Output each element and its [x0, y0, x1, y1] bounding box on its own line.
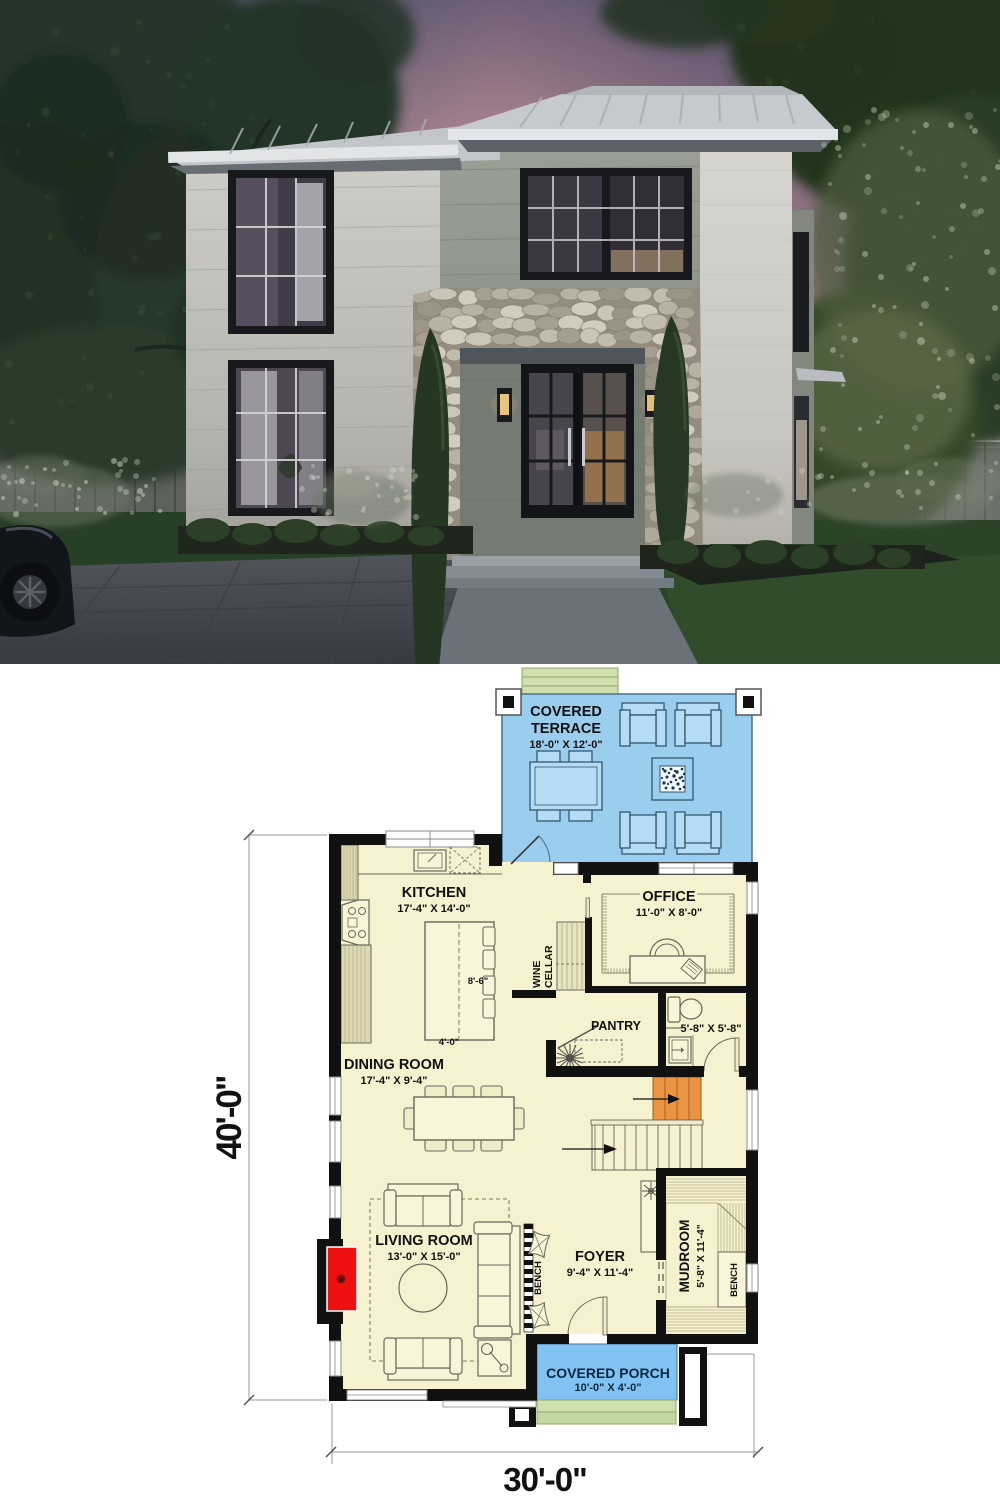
svg-text:5'-8" X 5'-8": 5'-8" X 5'-8"	[681, 1023, 742, 1035]
svg-text:4'-0": 4'-0"	[439, 1037, 460, 1048]
svg-text:LIVING ROOM: LIVING ROOM	[375, 1233, 472, 1249]
svg-text:DINING ROOM: DINING ROOM	[344, 1057, 444, 1073]
svg-text:COVERED PORCH: COVERED PORCH	[546, 1365, 670, 1381]
svg-text:OFFICE: OFFICE	[642, 889, 695, 905]
svg-text:BENCH: BENCH	[533, 1261, 544, 1295]
svg-text:8'-6": 8'-6"	[468, 976, 489, 987]
svg-text:10'-0" X 4'-0": 10'-0" X 4'-0"	[574, 1382, 641, 1394]
svg-text:PANTRY: PANTRY	[591, 1019, 642, 1033]
svg-text:CELLAR: CELLAR	[543, 945, 555, 988]
svg-text:13'-0" X 15'-0": 13'-0" X 15'-0"	[387, 1251, 460, 1263]
svg-text:18'-0" X 12'-0": 18'-0" X 12'-0"	[529, 739, 602, 751]
svg-text:COVERED: COVERED	[530, 704, 602, 720]
svg-text:9'-4" X 11'-4": 9'-4" X 11'-4"	[567, 1267, 633, 1279]
svg-text:17'-4" X 9'-4": 17'-4" X 9'-4"	[360, 1075, 427, 1087]
svg-text:40'-0": 40'-0"	[210, 1076, 249, 1159]
svg-text:KITCHEN: KITCHEN	[402, 885, 466, 901]
svg-text:FOYER: FOYER	[575, 1249, 625, 1265]
svg-text:17'-4" X 14'-0": 17'-4" X 14'-0"	[397, 903, 470, 915]
svg-text:WINE: WINE	[531, 961, 543, 988]
svg-text:TERRACE: TERRACE	[531, 721, 601, 737]
svg-text:BENCH: BENCH	[729, 1263, 740, 1297]
svg-text:5'-8" X 11'-4": 5'-8" X 11'-4"	[695, 1224, 707, 1287]
svg-text:11'-0" X 8'-0": 11'-0" X 8'-0"	[636, 907, 702, 919]
svg-text:30'-0": 30'-0"	[503, 1461, 587, 1498]
svg-text:MUDROOM: MUDROOM	[677, 1220, 692, 1293]
